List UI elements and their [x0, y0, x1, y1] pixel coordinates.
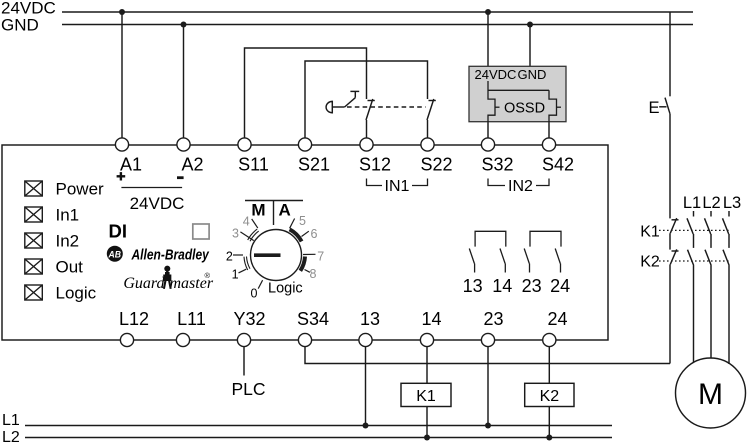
svg-text:L1: L1 [2, 412, 20, 429]
svg-text:AB: AB [108, 249, 122, 260]
svg-text:24: 24 [550, 276, 570, 296]
svg-text:2: 2 [226, 250, 233, 264]
svg-text:A: A [279, 201, 291, 220]
svg-text:K2: K2 [540, 388, 560, 405]
svg-text:3: 3 [232, 226, 239, 240]
svg-text:L1: L1 [683, 194, 701, 212]
svg-text:PLC: PLC [231, 379, 265, 399]
svg-text:5: 5 [299, 214, 306, 228]
svg-text:S12: S12 [359, 155, 391, 175]
svg-text:A2: A2 [181, 155, 203, 175]
svg-text:S32: S32 [481, 155, 513, 175]
svg-text:OSSD: OSSD [504, 101, 545, 117]
svg-text:8: 8 [310, 267, 317, 281]
svg-text:Logic: Logic [56, 284, 97, 303]
svg-text:L3: L3 [723, 194, 741, 212]
svg-text:4: 4 [243, 214, 250, 228]
svg-text:A1: A1 [120, 155, 142, 175]
svg-text:Guard: Guard [123, 275, 165, 292]
svg-text:S21: S21 [298, 155, 330, 175]
svg-text:L11: L11 [177, 309, 206, 329]
svg-text:14: 14 [492, 276, 512, 296]
svg-text:DI: DI [109, 221, 128, 242]
svg-text:14: 14 [421, 309, 441, 329]
svg-text:L2: L2 [702, 194, 720, 212]
svg-text:Allen-Bradley: Allen-Bradley [131, 246, 210, 263]
svg-text:In2: In2 [56, 232, 80, 251]
svg-text:In1: In1 [56, 206, 80, 225]
svg-text:S34: S34 [297, 309, 329, 329]
svg-text:6: 6 [311, 227, 318, 241]
svg-text:L2: L2 [2, 429, 20, 444]
svg-text:23: 23 [522, 276, 542, 296]
svg-text:S11: S11 [238, 155, 269, 175]
svg-text:1: 1 [232, 267, 239, 281]
svg-text:Power: Power [56, 180, 105, 199]
svg-text:IN2: IN2 [508, 178, 533, 195]
svg-text:E: E [649, 99, 660, 117]
svg-text:24VDC: 24VDC [130, 194, 185, 213]
svg-text:Out: Out [56, 258, 84, 277]
svg-text:S42: S42 [542, 155, 574, 175]
svg-text:GND: GND [518, 67, 547, 82]
svg-text:L12: L12 [119, 309, 149, 329]
svg-text:IN1: IN1 [385, 178, 410, 195]
svg-text:24: 24 [547, 309, 567, 329]
svg-text:K1: K1 [416, 388, 436, 405]
svg-text:K2: K2 [640, 254, 660, 271]
svg-text:23: 23 [483, 309, 503, 329]
svg-text:Logic: Logic [268, 281, 303, 297]
svg-text:13: 13 [463, 276, 483, 296]
svg-text:S22: S22 [420, 155, 452, 175]
svg-text:7: 7 [317, 249, 324, 263]
svg-text:24VDC: 24VDC [475, 67, 517, 82]
svg-text:K1: K1 [640, 224, 660, 241]
svg-text:Y32: Y32 [233, 309, 265, 329]
svg-text:®: ® [205, 271, 211, 280]
svg-text:GND: GND [1, 16, 39, 35]
svg-text:M: M [251, 201, 265, 220]
svg-text:0: 0 [251, 287, 258, 301]
svg-text:13: 13 [360, 309, 380, 329]
svg-text:M: M [698, 378, 723, 411]
